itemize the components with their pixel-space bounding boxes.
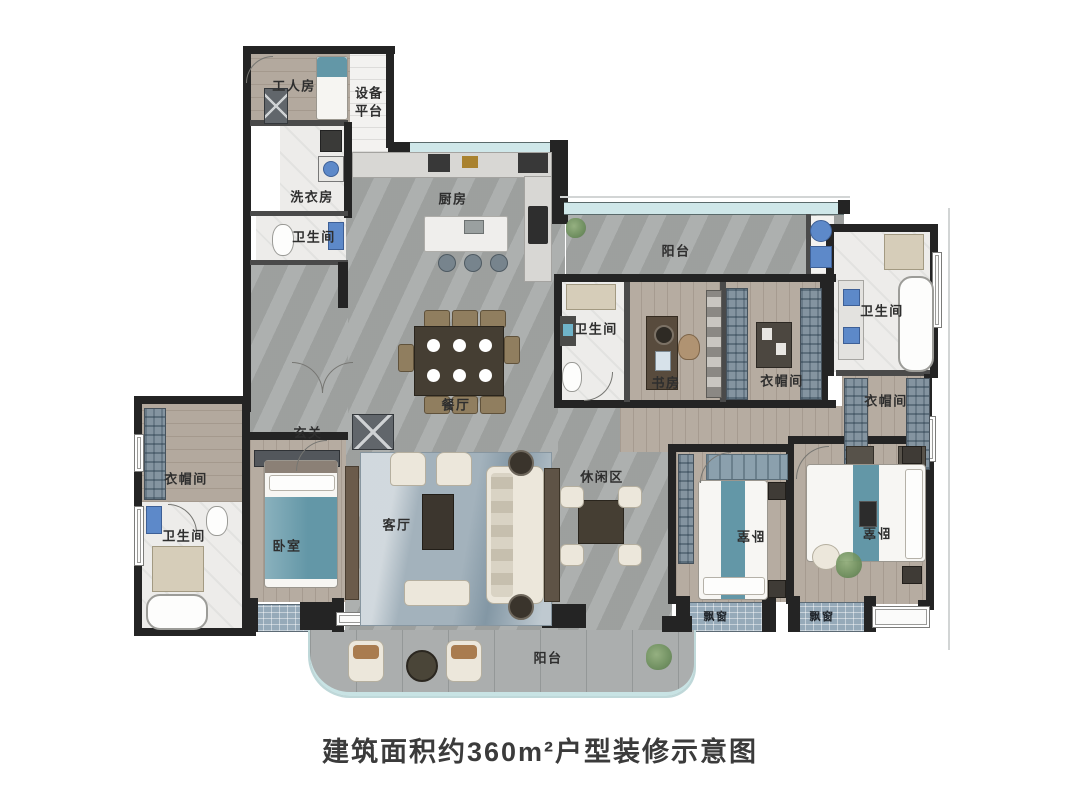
label-bedroom-left: 卧室	[272, 536, 301, 555]
sofa-cushions	[491, 473, 513, 597]
island-sink	[464, 220, 484, 234]
bath-left-shower	[152, 546, 204, 592]
worker-bed	[316, 56, 348, 120]
label-kitchen: 厨房	[438, 189, 467, 208]
bed-tray	[859, 501, 877, 527]
label-bay-window-mid: 飘窗	[704, 608, 729, 624]
label-dining: 餐厅	[441, 395, 470, 414]
sofa	[486, 466, 544, 604]
wall	[554, 400, 836, 408]
bath-mid-toilet	[562, 362, 582, 392]
hall-cabinet	[352, 414, 394, 450]
nightstand	[902, 566, 922, 584]
kitchen-stool	[490, 254, 508, 272]
exterior-contour-line	[948, 208, 950, 650]
bed-pillows	[269, 475, 335, 491]
label-living: 客厅	[382, 515, 411, 534]
wall	[668, 448, 676, 604]
bath-left-sink	[146, 506, 162, 534]
kitchen-sink-top	[428, 154, 450, 172]
study-chair	[678, 334, 700, 360]
wall	[826, 224, 938, 232]
wall	[250, 260, 348, 265]
room-foyer	[248, 262, 348, 438]
sofa-side-console	[544, 468, 560, 602]
bath-left-toilet	[206, 506, 228, 536]
nook-basin	[810, 220, 832, 242]
nightstand	[902, 446, 922, 464]
wall	[250, 211, 348, 216]
wall	[788, 596, 800, 632]
wall	[662, 616, 692, 632]
label-bath-left: 卫生间	[162, 526, 206, 545]
nightstand	[768, 580, 786, 598]
room-balcony-top	[566, 213, 844, 277]
closet-mid-wardrobe-left	[726, 288, 748, 400]
wall	[300, 602, 334, 630]
coffee-table	[422, 494, 454, 550]
label-closet-left: 衣帽间	[164, 469, 208, 488]
laundry-appliance	[320, 130, 342, 152]
bed-pillows	[703, 577, 765, 595]
bath-right-sink	[843, 327, 860, 344]
leisure-chair	[618, 486, 642, 508]
wall	[344, 122, 352, 218]
bath-right-shower	[884, 234, 924, 270]
kitchen-stove	[528, 206, 548, 244]
bath-mid-sink	[563, 324, 573, 336]
balcony-chair	[446, 640, 482, 682]
wall	[243, 46, 251, 412]
tv-console	[345, 466, 359, 600]
nook-fixture	[810, 246, 832, 268]
armchair	[436, 452, 472, 486]
wall	[386, 46, 394, 148]
bed-pillows	[905, 469, 923, 559]
label-closet-right: 衣帽间	[864, 391, 908, 410]
bath-left-window	[134, 506, 144, 566]
wall	[668, 444, 792, 452]
plate	[453, 339, 466, 352]
plate	[479, 369, 492, 382]
washing-machine	[318, 156, 344, 182]
closet-left-window	[134, 434, 144, 472]
plate	[479, 339, 492, 352]
leisure-chair	[560, 544, 584, 566]
bath-tl-toilet	[272, 224, 294, 256]
balcony-top-window	[564, 202, 844, 215]
bedroom-right-window	[872, 606, 930, 628]
wall	[246, 598, 258, 632]
worker-bed-blanket	[317, 57, 347, 77]
leisure-table	[578, 500, 624, 544]
bedroom-mid-wardrobe	[678, 454, 694, 564]
desk-globe	[654, 325, 674, 345]
plate	[427, 369, 440, 382]
label-balcony-top: 阳台	[661, 241, 690, 260]
island-tray	[762, 328, 772, 340]
dining-chair	[504, 336, 520, 364]
label-study: 书房	[651, 373, 680, 392]
kitchen-cutting-board	[462, 156, 478, 168]
label-leisure: 休闲区	[580, 467, 624, 486]
desk-laptop	[655, 351, 671, 371]
dining-chair	[398, 344, 414, 372]
dining-chair	[480, 396, 506, 414]
label-closet-mid: 衣帽间	[760, 371, 804, 390]
closet-mid-island	[756, 322, 792, 368]
side-table	[508, 450, 534, 476]
label-laundry: 洗衣房	[290, 187, 334, 206]
wall	[554, 274, 836, 282]
armchair	[390, 452, 426, 486]
label-bay-window-right: 飘窗	[810, 608, 835, 624]
side-table	[508, 594, 534, 620]
label-bath-right: 卫生间	[860, 301, 904, 320]
chair-cushion	[451, 645, 477, 659]
leisure-chair	[618, 544, 642, 566]
wall	[134, 396, 250, 404]
exterior-contour-line	[560, 196, 850, 198]
label-worker-room: 工人房	[272, 76, 316, 95]
kitchen-appliance	[518, 153, 548, 173]
label-foyer: 玄关	[293, 423, 322, 442]
living-bench	[404, 580, 470, 606]
wall	[762, 596, 776, 632]
label-equipment-platform: 设备平台	[354, 84, 384, 119]
wall	[624, 282, 630, 402]
plate	[427, 339, 440, 352]
wall	[243, 46, 395, 54]
wall	[338, 262, 348, 308]
label-bedroom-mid: 卧室	[735, 528, 764, 547]
bath-right-tub	[898, 276, 934, 372]
chair-cushion	[353, 645, 379, 659]
label-bath-top-left: 卫生间	[292, 227, 336, 246]
balcony-table	[406, 650, 438, 682]
label-balcony-bottom: 阳台	[533, 648, 562, 667]
label-bedroom-right: 卧室	[861, 525, 890, 544]
nightstand	[768, 482, 786, 500]
study-bookshelf	[706, 290, 722, 398]
floor-plan: 工人房 设备平台 洗衣房 卫生间 厨房 阳台 卫生间 书房 衣帽间 卫生间 衣帽…	[0, 0, 1080, 810]
kitchen-stool	[464, 254, 482, 272]
bath-right-vanity	[838, 280, 864, 360]
dining-table	[414, 326, 504, 396]
bath-left-tub	[146, 594, 208, 630]
label-bath-mid: 卫生间	[574, 319, 618, 338]
kitchen-stool	[438, 254, 456, 272]
plate	[453, 369, 466, 382]
wall	[838, 200, 850, 214]
closet-left-wardrobe	[144, 408, 166, 500]
bath-right-sink	[843, 289, 860, 306]
wall	[388, 142, 412, 152]
island-tray	[776, 343, 786, 355]
bath-mid-shower	[566, 284, 616, 310]
bedroom-left-bed	[264, 460, 338, 588]
washer-drum	[323, 161, 339, 177]
plan-caption: 建筑面积约360m²户型装修示意图	[0, 730, 1080, 769]
leisure-chair	[560, 486, 584, 508]
balcony-chair	[348, 640, 384, 682]
